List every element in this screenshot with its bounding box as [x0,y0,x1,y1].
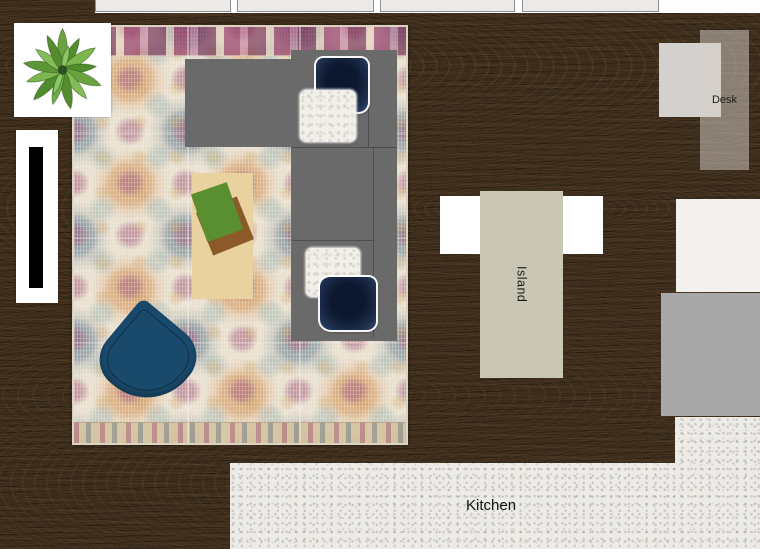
media-console[interactable] [16,130,58,303]
sofa-seam [292,240,373,241]
cabinet-light[interactable] [676,199,760,292]
desk[interactable]: Desk [700,30,749,170]
island-label: Island [515,266,529,302]
kitchen-label: Kitchen [466,497,516,514]
window[interactable] [95,0,231,12]
kitchen-island[interactable]: Island [480,191,563,378]
floor-plan-canvas: Desk Island Kitchen [0,0,760,549]
sofa-seam [291,147,397,148]
window[interactable] [522,0,659,12]
window[interactable] [380,0,515,12]
top-wall [95,0,760,13]
potted-plant[interactable] [14,23,111,117]
window[interactable] [237,0,374,12]
cabinet-gray[interactable] [661,293,760,416]
fur-throw-pillow[interactable] [300,90,356,142]
sofa-seam [368,59,369,147]
rug-border-band-bottom [74,422,406,443]
plant-icon [14,23,111,117]
navy-throw-pillow[interactable] [320,277,376,330]
desk-label: Desk [712,94,737,106]
tv-screen [29,147,43,288]
